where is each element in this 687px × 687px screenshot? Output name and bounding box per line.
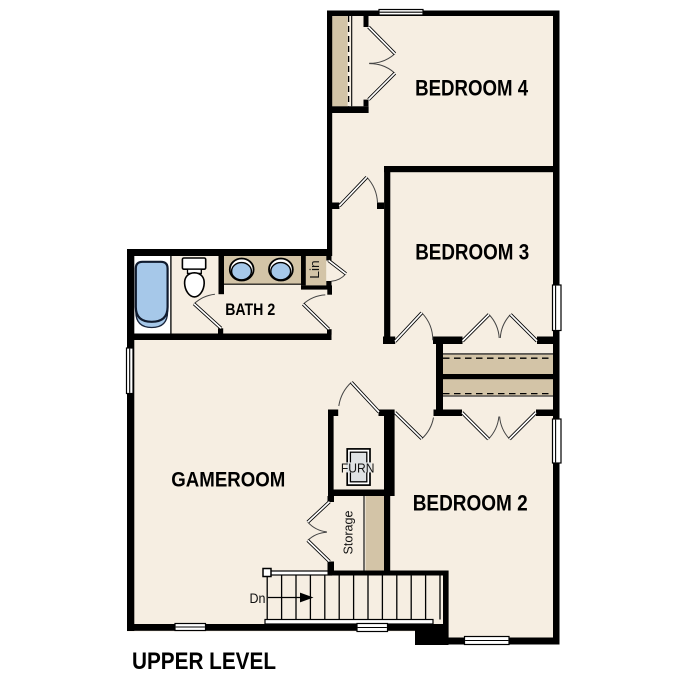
svg-text:BATH 2: BATH 2: [225, 301, 275, 319]
svg-text:GAMEROOM: GAMEROOM: [171, 468, 285, 492]
svg-text:FURN: FURN: [341, 461, 375, 476]
svg-text:BEDROOM 2: BEDROOM 2: [413, 491, 528, 516]
svg-text:Storage: Storage: [341, 511, 356, 555]
svg-text:BEDROOM 4: BEDROOM 4: [415, 76, 529, 101]
svg-text:BEDROOM 3: BEDROOM 3: [415, 239, 529, 264]
svg-text:UPPER LEVEL: UPPER LEVEL: [132, 648, 276, 675]
svg-text:Lin: Lin: [308, 260, 322, 279]
svg-text:Dn: Dn: [250, 590, 266, 606]
